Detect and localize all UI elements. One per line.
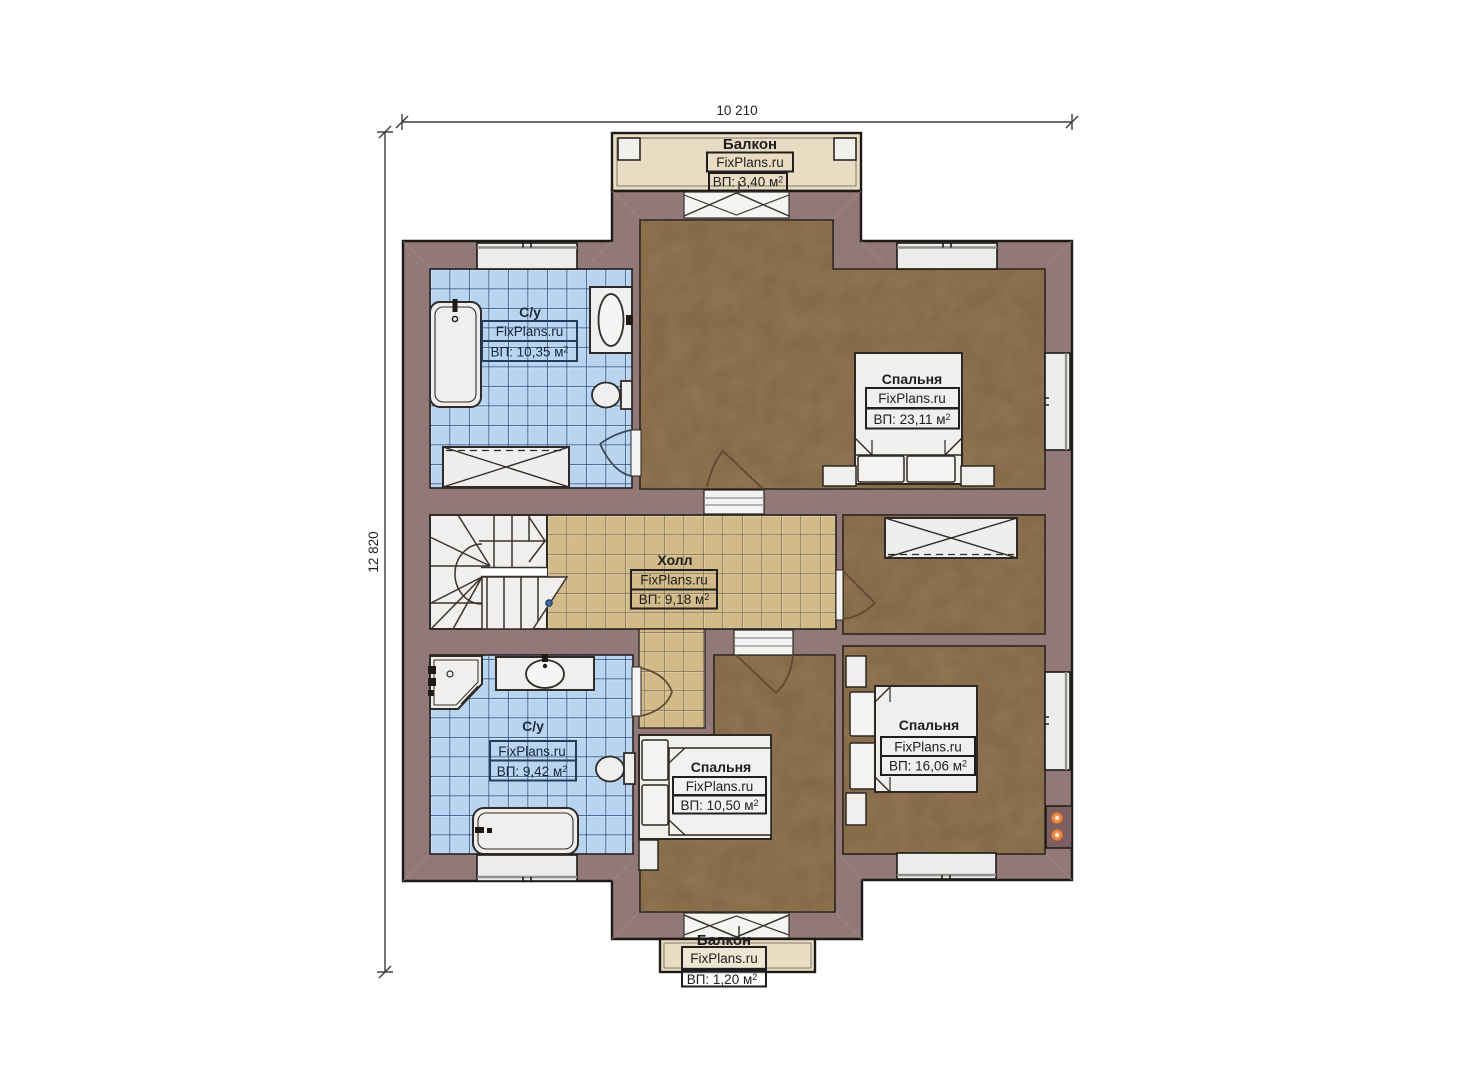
svg-text:Спальня: Спальня (882, 371, 942, 387)
svg-text:FixPlans.ru: FixPlans.ru (686, 779, 754, 794)
svg-text:FixPlans.ru: FixPlans.ru (878, 391, 946, 406)
svg-text:Спальня: Спальня (691, 759, 751, 775)
svg-text:ВП: 10,35 м2: ВП: 10,35 м2 (490, 345, 568, 360)
svg-text:FixPlans.ru: FixPlans.ru (690, 951, 758, 966)
svg-text:Спальня: Спальня (899, 717, 959, 733)
svg-text:ВП: 9,42 м2: ВП: 9,42 м2 (497, 764, 568, 779)
svg-text:FixPlans.ru: FixPlans.ru (496, 324, 564, 339)
svg-text:FixPlans.ru: FixPlans.ru (498, 744, 566, 759)
svg-text:Холл: Холл (657, 552, 692, 568)
svg-text:ВП: 10,50 м2: ВП: 10,50 м2 (680, 798, 758, 813)
svg-text:ВП: 3,40 м2: ВП: 3,40 м2 (713, 175, 784, 190)
svg-text:С/у: С/у (519, 304, 541, 320)
svg-text:ВП: 1,20 м2: ВП: 1,20 м2 (687, 972, 758, 987)
svg-text:ВП: 23,11 м2: ВП: 23,11 м2 (873, 412, 950, 427)
svg-text:12 820: 12 820 (366, 531, 381, 572)
svg-text:С/у: С/у (522, 718, 544, 734)
svg-text:FixPlans.ru: FixPlans.ru (640, 573, 708, 588)
svg-text:ВП: 9,18 м2: ВП: 9,18 м2 (639, 592, 710, 607)
svg-text:FixPlans.ru: FixPlans.ru (716, 155, 784, 170)
svg-text:ВП: 16,06 м2: ВП: 16,06 м2 (889, 759, 967, 774)
svg-text:Балкон: Балкон (723, 136, 777, 153)
svg-text:10 210: 10 210 (716, 103, 757, 118)
svg-text:FixPlans.ru: FixPlans.ru (894, 740, 962, 755)
